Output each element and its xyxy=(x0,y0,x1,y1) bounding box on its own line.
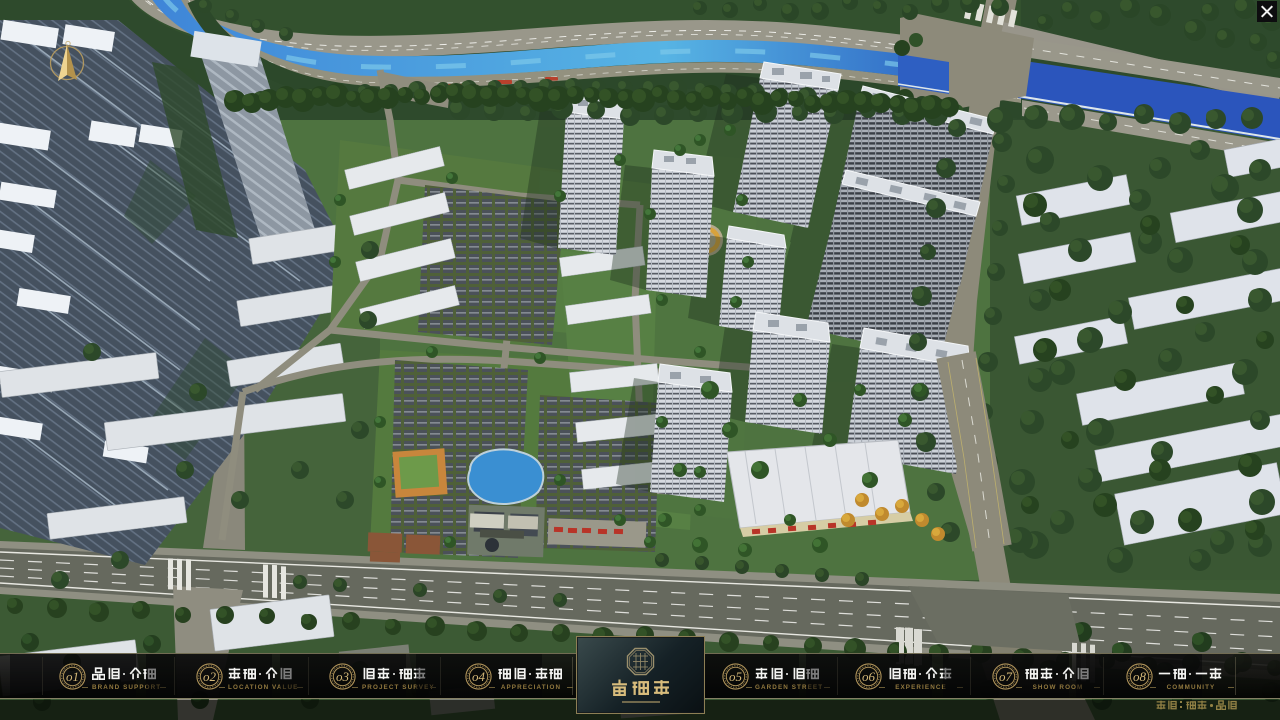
svg-text:o8: o8 xyxy=(1133,669,1147,684)
svg-text:o3: o3 xyxy=(336,669,350,684)
svg-text:o4: o4 xyxy=(472,669,486,684)
svg-text:o6: o6 xyxy=(862,669,876,684)
svg-text:o2: o2 xyxy=(203,669,217,684)
svg-text:o7: o7 xyxy=(999,669,1013,684)
svg-text:o5: o5 xyxy=(729,669,743,684)
svg-text:o1: o1 xyxy=(66,669,79,684)
